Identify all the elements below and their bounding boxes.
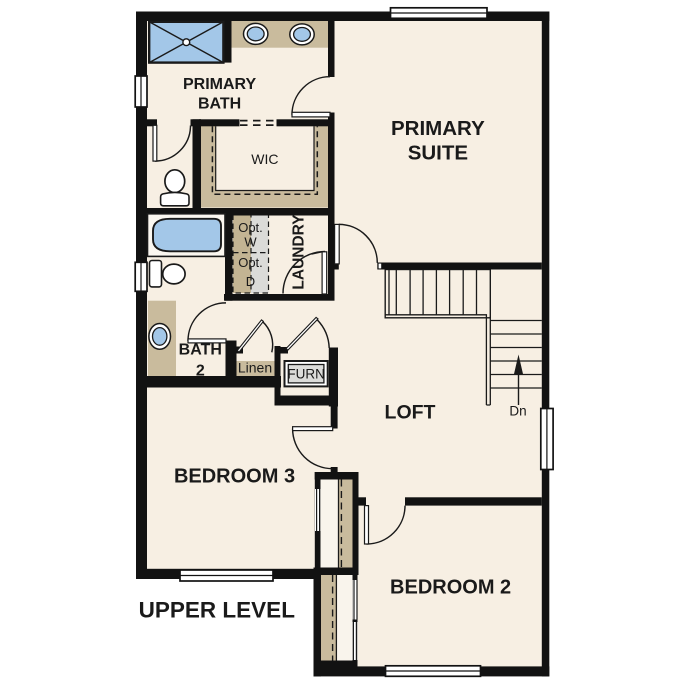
svg-text:LAUNDRY: LAUNDRY [291,214,308,290]
svg-text:Opt.: Opt. [238,220,263,235]
svg-text:PRIMARY: PRIMARY [183,76,257,93]
svg-text:UPPER LEVEL: UPPER LEVEL [139,597,296,622]
svg-text:2: 2 [196,363,205,380]
svg-text:Opt.: Opt. [238,255,263,270]
svg-text:FURN: FURN [287,366,325,381]
svg-text:BEDROOM 3: BEDROOM 3 [174,465,295,487]
svg-text:D: D [246,274,255,289]
svg-text:BATH: BATH [179,342,222,359]
svg-text:W: W [244,235,257,250]
svg-text:LOFT: LOFT [385,402,436,424]
svg-text:PRIMARY: PRIMARY [391,117,485,140]
svg-text:Dn: Dn [509,404,526,419]
svg-text:SUITE: SUITE [408,142,468,165]
svg-text:WIC: WIC [251,151,278,167]
svg-text:BEDROOM 2: BEDROOM 2 [390,576,511,598]
svg-text:BATH: BATH [198,96,241,113]
svg-text:Linen: Linen [238,360,272,376]
